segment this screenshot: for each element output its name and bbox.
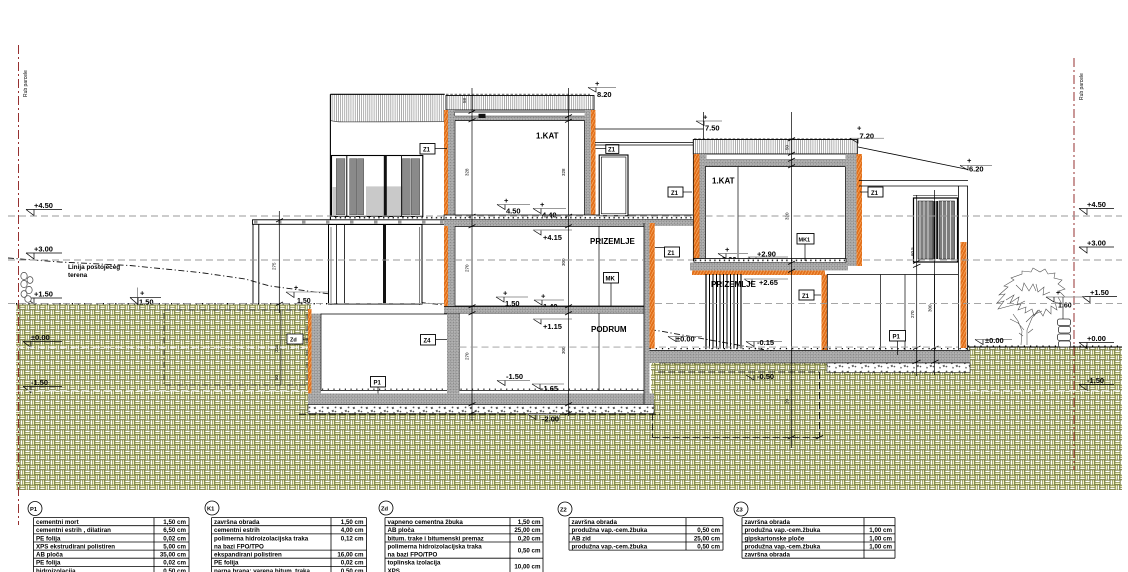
svg-text:toplinska izolacija: toplinska izolacija [388,560,442,567]
svg-text:4,00 cm: 4,00 cm [341,527,364,534]
svg-text:terena: terena [68,272,88,279]
svg-text:4.40: 4.40 [542,211,557,220]
svg-text:+: + [725,245,730,254]
svg-text:7.50: 7.50 [705,124,720,133]
svg-text:1.KAT: 1.KAT [712,177,735,186]
svg-text:gipskartonske ploče: gipskartonske ploče [745,535,805,542]
svg-text:P1: P1 [893,335,901,341]
svg-text:na bazi FPO/TPO: na bazi FPO/TPO [214,543,264,550]
svg-text:cementni estrih: cementni estrih [214,527,260,534]
svg-text:60.5: 60.5 [910,247,915,256]
svg-text:Z1: Z1 [608,148,616,154]
svg-text:+4.15: +4.15 [543,233,562,242]
svg-text:PE folija: PE folija [36,535,61,542]
svg-text:±0.00: ±0.00 [676,335,695,344]
svg-text:na bazi FPO/TPO: na bazi FPO/TPO [388,552,438,559]
svg-text:+4.50: +4.50 [1087,200,1106,209]
svg-text:270: 270 [465,352,470,360]
svg-text:0,02 cm: 0,02 cm [163,560,186,567]
svg-text:+: + [1056,290,1060,297]
svg-text:300: 300 [928,304,933,312]
svg-text:Rub parcele: Rub parcele [1079,73,1085,100]
svg-text:+1.50: +1.50 [34,290,53,299]
svg-text:-1.50: -1.50 [506,372,523,381]
svg-text:-0.15: -0.15 [757,338,774,347]
svg-text:polimerna hidroizolacijska tra: polimerna hidroizolacijska traka [214,535,309,542]
svg-text:-0.50: -0.50 [757,372,774,381]
svg-text:P1: P1 [374,381,382,387]
svg-text:1,00 cm: 1,00 cm [869,535,892,542]
svg-text:+: + [504,196,509,205]
svg-text:K1: K1 [207,507,215,513]
svg-text:8.20: 8.20 [597,90,612,99]
svg-text:+: + [294,285,298,292]
svg-text:PODRUM: PODRUM [591,325,627,334]
svg-text:58: 58 [462,97,467,103]
svg-text:produžna vap.-cem.žbuka: produžna vap.-cem.žbuka [745,527,821,534]
svg-text:PE folija: PE folija [36,560,61,567]
svg-text:završna obrada: završna obrada [572,519,618,526]
svg-text:PRIZEMLJE: PRIZEMLJE [711,280,757,289]
svg-text:+4.50: +4.50 [34,201,53,210]
svg-text:Zd: Zd [290,338,297,344]
svg-text:Z2: Z2 [560,508,567,514]
svg-text:produžna vap.-cem.žbuka: produžna vap.-cem.žbuka [572,543,648,550]
svg-text:Z1: Z1 [802,294,810,300]
svg-text:20: 20 [785,398,790,404]
svg-text:1.KAT: 1.KAT [536,132,559,141]
svg-text:4.50: 4.50 [506,207,521,216]
svg-text:-2.00: -2.00 [542,415,559,424]
svg-text:hidroizolacija: hidroizolacija [36,568,76,572]
svg-text:328: 328 [465,168,470,176]
svg-text:7.20: 7.20 [860,132,875,141]
svg-text:XPS: XPS [388,568,400,572]
svg-text:ekspandirani polistiren: ekspandirani polistiren [214,552,282,559]
svg-text:0,50 cm: 0,50 cm [697,543,720,550]
svg-text:+3.00: +3.00 [34,245,53,254]
svg-text:0,02 cm: 0,02 cm [341,560,364,567]
svg-text:cementni mort: cementni mort [36,519,79,526]
svg-text:završna obrada: završna obrada [745,519,791,526]
svg-text:0,12 cm: 0,12 cm [341,535,364,542]
svg-text:+: + [541,292,546,301]
svg-text:50: 50 [785,144,790,150]
svg-text:1,50 cm: 1,50 cm [341,519,364,526]
svg-text:MK1: MK1 [799,238,811,244]
svg-text:25,00 cm: 25,00 cm [694,535,721,542]
svg-text:Z1: Z1 [668,251,676,257]
svg-text:1,50 cm: 1,50 cm [163,519,186,526]
svg-text:Z4: Z4 [424,339,432,345]
svg-text:+: + [503,289,508,298]
svg-text:PRIZEMLJE: PRIZEMLJE [590,237,636,246]
svg-text:AB zid: AB zid [572,535,591,542]
svg-text:1,50 cm: 1,50 cm [518,519,541,526]
svg-text:Z1: Z1 [871,191,879,197]
svg-text:PE folija: PE folija [214,560,239,567]
svg-text:polimerna hidroizolacijska tra: polimerna hidroizolacijska traka [388,543,483,550]
svg-text:XPS ekstrudirani polistiren: XPS ekstrudirani polistiren [36,543,115,550]
svg-text:Zd: Zd [381,507,389,513]
svg-text:AB ploča: AB ploča [36,552,63,559]
svg-text:±0.00: ±0.00 [31,333,50,342]
svg-text:-1.50: -1.50 [31,378,48,387]
svg-text:5,00 cm: 5,00 cm [163,543,186,550]
svg-text:1,00 cm: 1,00 cm [869,543,892,550]
svg-text:AB ploča: AB ploča [388,527,415,534]
svg-text:Z1: Z1 [423,148,431,154]
svg-text:produžna vap.-cem.žbuka: produžna vap.-cem.žbuka [572,527,648,534]
svg-text:328: 328 [561,168,566,176]
svg-text:6,50 cm: 6,50 cm [163,527,186,534]
svg-text:270: 270 [465,264,470,272]
svg-text:225: 225 [274,344,279,352]
svg-text:6.20: 6.20 [969,165,984,174]
svg-text:Linija postojećeg: Linija postojećeg [68,264,120,271]
svg-text:produžna vap.-cem.žbuka: produžna vap.-cem.žbuka [745,543,821,550]
svg-text:bitum. trake i bitumenski prem: bitum. trake i bitumenski premaz [388,535,484,542]
svg-text:16,00 cm: 16,00 cm [337,552,364,559]
svg-text:cementni estrih , dilatiran: cementni estrih , dilatiran [36,527,111,534]
svg-text:+: + [595,79,600,88]
svg-text:275: 275 [272,262,277,270]
svg-text:završna obrada: završna obrada [214,519,260,526]
svg-text:+2.65: +2.65 [759,278,778,287]
svg-text:25,00 cm: 25,00 cm [514,527,541,534]
svg-text:završna obrada: završna obrada [745,552,791,559]
svg-text:+1.50: +1.50 [1090,288,1109,297]
svg-text:-1.65: -1.65 [541,384,558,393]
svg-text:10,00 cm: 10,00 cm [514,564,541,571]
svg-text:35,00 cm: 35,00 cm [160,552,187,559]
svg-text:0,20 cm: 0,20 cm [518,535,541,542]
svg-text:+1.15: +1.15 [543,322,562,331]
svg-text:+3.00: +3.00 [1087,239,1106,248]
svg-text:±0.00: ±0.00 [985,336,1004,345]
svg-text:1,00 cm: 1,00 cm [869,527,892,534]
svg-text:parna brana: varena bitum. tra: parna brana: varena bitum. traka [214,568,310,572]
svg-text:P1: P1 [30,507,38,513]
svg-text:0,50 cm: 0,50 cm [163,568,186,572]
svg-text:Z3: Z3 [736,508,744,514]
svg-text:Rub parcele: Rub parcele [23,70,29,97]
svg-text:0,50 cm: 0,50 cm [697,527,720,534]
svg-text:Z1: Z1 [671,191,679,197]
svg-text:50: 50 [274,374,279,380]
svg-text:-1.50: -1.50 [1087,376,1104,385]
svg-text:0,50 cm: 0,50 cm [341,568,364,572]
svg-text:+0.00: +0.00 [1087,334,1106,343]
svg-text:vapneno cementna žbuka: vapneno cementna žbuka [388,519,464,526]
svg-text:+: + [140,289,145,298]
svg-text:1.50: 1.50 [139,298,154,307]
svg-text:+: + [540,200,545,209]
svg-text:300: 300 [561,258,566,266]
svg-text:0,02 cm: 0,02 cm [163,535,186,542]
svg-text:0,50 cm: 0,50 cm [518,548,541,555]
svg-text:+2.90: +2.90 [757,250,776,259]
svg-text:270: 270 [910,310,915,318]
svg-text:MK: MK [606,277,616,283]
